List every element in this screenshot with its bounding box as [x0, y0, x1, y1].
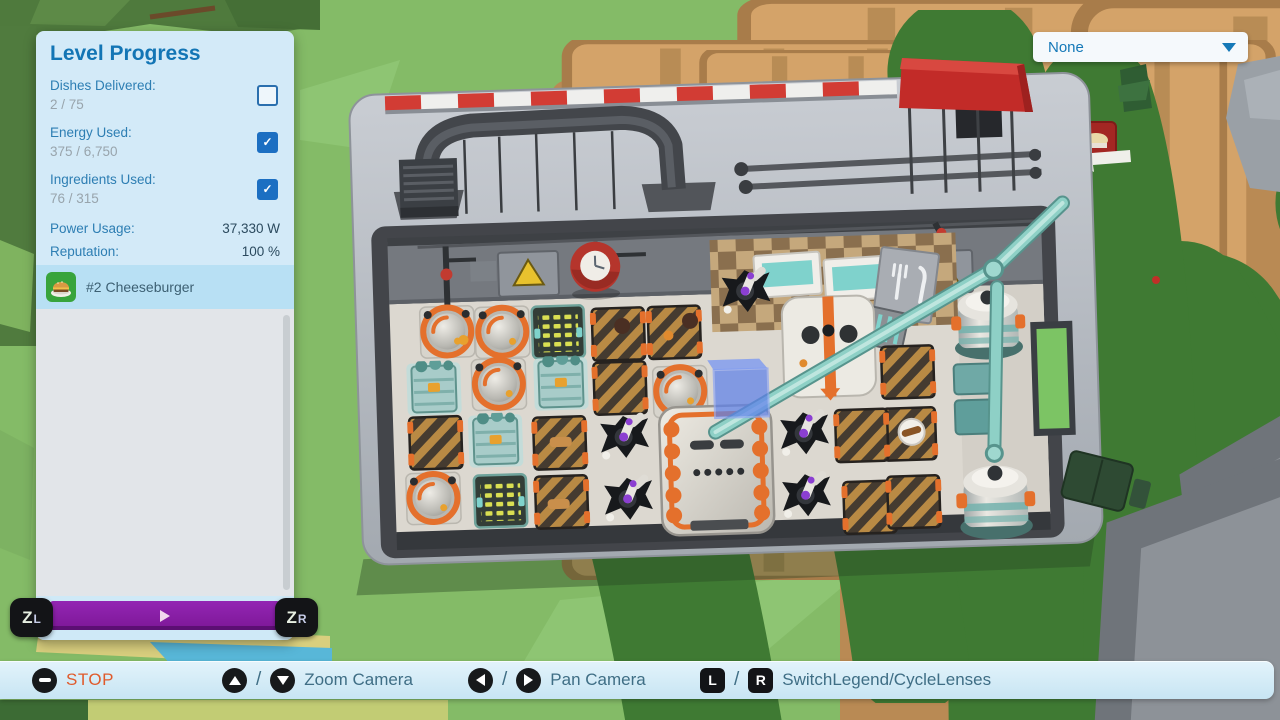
red-canopy	[899, 58, 1033, 112]
control-zoom-camera[interactable]: / Zoom Camera	[222, 661, 413, 699]
minus-button-icon	[32, 668, 57, 693]
meter-label: Reputation:	[50, 240, 119, 263]
drive-thru-window	[1030, 321, 1076, 436]
machine-grill[interactable]	[419, 306, 475, 359]
lens-dropdown[interactable]: None	[1033, 32, 1248, 62]
stat-label: Energy Used:	[50, 123, 257, 142]
machine-grill[interactable]	[474, 306, 530, 359]
control-pan-camera[interactable]: / Pan Camera	[468, 661, 646, 699]
control-label: SwitchLegend/CycleLenses	[782, 670, 991, 690]
zr-label: Z	[286, 608, 296, 628]
control-label: Pan Camera	[550, 670, 645, 690]
control-stop[interactable]: STOP	[32, 661, 114, 699]
dpad-right-icon	[516, 668, 541, 693]
machine-dispenser-crate[interactable]	[531, 305, 585, 359]
kitchen-interior[interactable]	[371, 203, 1079, 559]
machine-conveyor[interactable]	[879, 345, 937, 399]
meter-label: Power Usage:	[50, 217, 135, 240]
chevron-down-icon	[1222, 43, 1236, 52]
zl-button[interactable]: ZL	[10, 598, 53, 637]
playback-bar: ZL ZR	[36, 596, 294, 640]
zr-button[interactable]: ZR	[275, 598, 318, 637]
simulation-progress-bar[interactable]	[50, 601, 280, 630]
level-progress-stats: Level Progress Dishes Delivered: 2 / 75 …	[36, 31, 294, 265]
separator: /	[734, 669, 739, 691]
button-letter: R	[298, 612, 307, 626]
stat-energy-used: Energy Used: 375 / 6,750 ✓	[50, 123, 280, 161]
control-label: Zoom Camera	[304, 670, 413, 690]
roof-vent	[399, 158, 459, 218]
meter-reputation: Reputation: 100 %	[50, 240, 280, 263]
machine-hopper[interactable]	[533, 352, 589, 411]
game-screen: Level Progress Dishes Delivered: 2 / 75 …	[0, 0, 1280, 720]
machine-conveyor[interactable]	[885, 475, 943, 529]
machine-conveyor[interactable]	[590, 307, 648, 361]
machine-conveyor[interactable]	[407, 416, 465, 470]
play-icon	[160, 610, 170, 622]
stat-ingredients-used: Ingredients Used: 76 / 315 ✓	[50, 170, 280, 208]
stat-value: 2 / 75	[50, 95, 257, 114]
machine-grill[interactable]	[406, 472, 462, 525]
machine-conveyor[interactable]	[646, 305, 704, 359]
lens-dropdown-value: None	[1033, 39, 1222, 56]
control-switch-legend[interactable]: L / R SwitchLegend/CycleLenses	[700, 661, 991, 699]
control-label: STOP	[66, 670, 114, 690]
machine-grill[interactable]	[471, 358, 527, 411]
separator: /	[256, 669, 261, 691]
zl-label: Z	[22, 608, 32, 628]
stat-dishes-delivered: Dishes Delivered: 2 / 75 ✓	[50, 76, 280, 114]
machine-silo[interactable]	[950, 289, 1026, 360]
separator: /	[502, 669, 507, 691]
stat-value: 375 / 6,750	[50, 142, 257, 161]
meter-value: 100 %	[242, 240, 280, 263]
plate-with-food	[898, 419, 925, 446]
selection-cube	[707, 358, 769, 418]
order-list[interactable]	[36, 309, 294, 596]
control-bar: STOP / Zoom Camera / Pan Camera L / R Sw…	[0, 661, 1274, 699]
button-letter: L	[34, 612, 41, 626]
wall-clock	[569, 241, 621, 301]
meter-value: 37,330 W	[222, 217, 280, 240]
ingredients-checkbox[interactable]: ✓	[257, 179, 278, 200]
machine-dispenser-crate[interactable]	[474, 474, 528, 528]
dishes-checkbox[interactable]: ✓	[257, 85, 278, 106]
dpad-up-icon	[222, 668, 247, 693]
machine-silo[interactable]	[955, 464, 1036, 540]
restaurant-building[interactable]	[341, 72, 1104, 595]
machine-hopper[interactable]	[406, 357, 462, 416]
machine-conveyor[interactable]	[833, 409, 891, 463]
level-progress-panel: Level Progress Dishes Delivered: 2 / 75 …	[36, 31, 294, 640]
cheeseburger-icon	[46, 272, 76, 302]
order-list-scrollbar[interactable]	[283, 315, 290, 590]
panel-title: Level Progress	[50, 42, 280, 66]
machine-hopper[interactable]	[468, 409, 524, 468]
stat-label: Dishes Delivered:	[50, 76, 257, 95]
r-key-icon: R	[748, 668, 773, 693]
dpad-left-icon	[468, 668, 493, 693]
meter-power-usage: Power Usage: 37,330 W	[50, 217, 280, 240]
stat-value: 76 / 315	[50, 189, 257, 208]
dpad-down-icon	[270, 668, 295, 693]
energy-checkbox[interactable]: ✓	[257, 132, 278, 153]
order-label: #2 Cheeseburger	[86, 279, 194, 295]
machine-conveyor[interactable]	[591, 361, 649, 415]
stat-label: Ingredients Used:	[50, 170, 257, 189]
order-list-item-selected[interactable]: #2 Cheeseburger	[36, 265, 294, 309]
l-key-icon: L	[700, 668, 725, 693]
